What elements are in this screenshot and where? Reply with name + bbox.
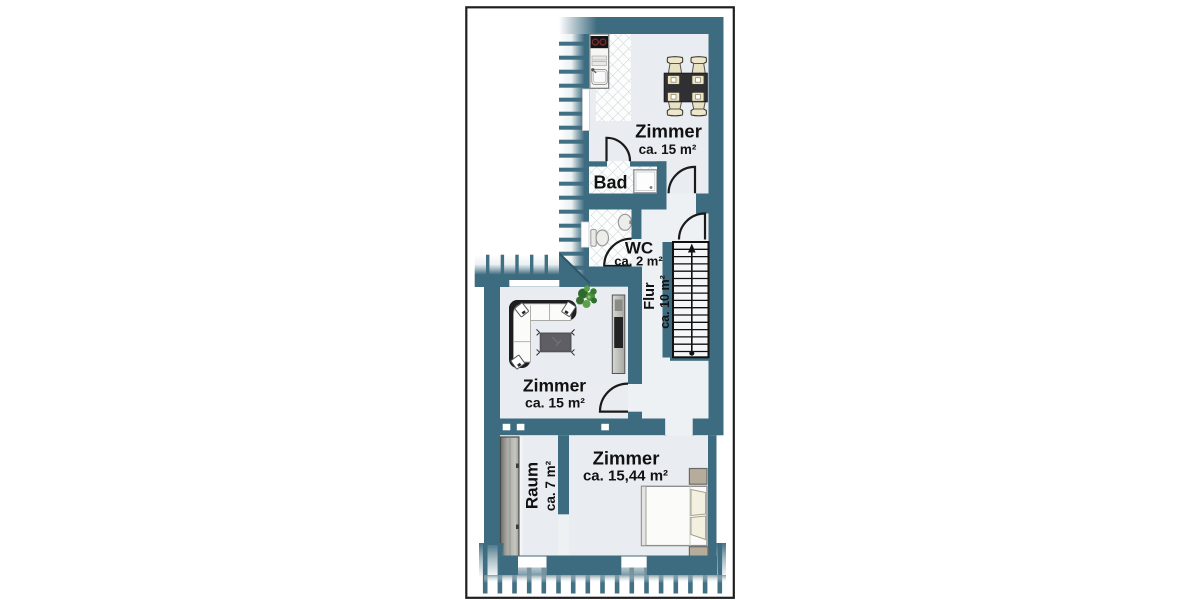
svg-text:Bad: Bad — [593, 173, 627, 193]
svg-text:Raum: Raum — [523, 462, 542, 509]
svg-text:ca. 2 m²: ca. 2 m² — [614, 254, 663, 269]
svg-text:ca. 15 m²: ca. 15 m² — [639, 142, 697, 157]
svg-text:ca. 15 m²: ca. 15 m² — [525, 395, 585, 411]
svg-text:Zimmer: Zimmer — [593, 448, 660, 469]
svg-text:Zimmer: Zimmer — [635, 121, 702, 142]
svg-text:Flur: Flur — [642, 282, 658, 310]
svg-text:Zimmer: Zimmer — [523, 376, 586, 396]
svg-text:ca. 10 m²: ca. 10 m² — [658, 275, 672, 329]
svg-text:ca. 7 m²: ca. 7 m² — [543, 460, 558, 511]
svg-text:ca. 15,44 m²: ca. 15,44 m² — [583, 468, 668, 485]
